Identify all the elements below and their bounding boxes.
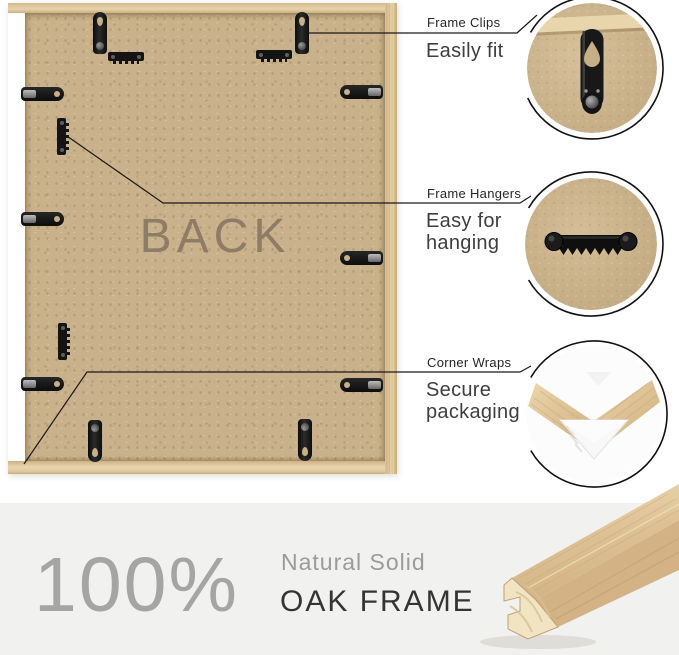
frame-bottom-rail — [8, 461, 397, 474]
oak-moulding-photo — [458, 480, 679, 655]
frame-clip-inset-photo — [527, 3, 657, 133]
frame-top-rail — [8, 3, 397, 13]
banner-oak-frame: OAK FRAME — [280, 585, 475, 619]
callout-title-corner-wraps: Corner Wraps — [427, 355, 511, 370]
back-label: BACK — [25, 209, 405, 264]
sawtooth-hanger-illustration — [525, 178, 657, 310]
frame-clip-illustration — [527, 3, 657, 133]
frame-left-rail — [8, 3, 25, 474]
frame-back-photo: BACK — [8, 3, 397, 474]
callout-subtitle-frame-hangers: Easy for hanging — [426, 210, 544, 254]
callout-subtitle-frame-clips: Easily fit — [426, 40, 544, 62]
mdf-backing: BACK — [25, 13, 385, 461]
callout-title-frame-hangers: Frame Hangers — [427, 186, 521, 201]
banner-percent: 100% — [34, 545, 239, 626]
banner-natural-solid: Natural Solid — [281, 549, 426, 576]
product-infographic: BACK — [0, 0, 679, 655]
callout-subtitle-corner-wraps: Secure packaging — [426, 379, 544, 423]
frame-hanger-inset-photo — [525, 178, 657, 310]
corner-wrap-inset-photo — [526, 346, 662, 482]
callout-title-frame-clips: Frame Clips — [427, 15, 500, 30]
corner-wrap-illustration — [526, 346, 662, 482]
